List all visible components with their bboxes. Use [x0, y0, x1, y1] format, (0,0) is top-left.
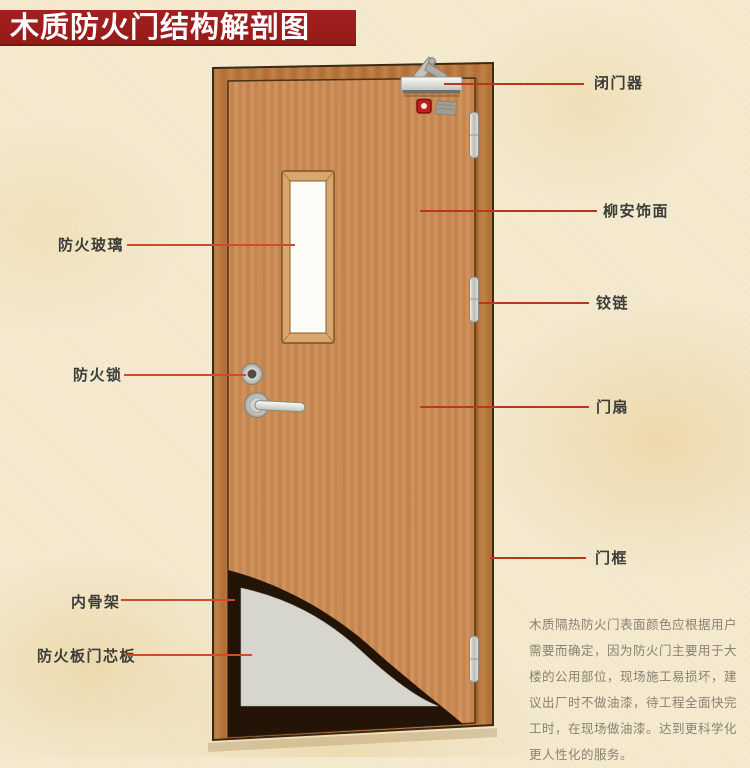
- description-line: 木质隔热防火门表面颜色应根据用户: [529, 612, 725, 638]
- callout-door-frame: 门框: [595, 550, 628, 568]
- leader-line-door-leaf: [420, 406, 589, 408]
- leader-line-core-panel: [125, 654, 252, 656]
- description-line: 楼的公用部位，现场施工易损坏，建: [529, 664, 725, 690]
- hinge-middle: [470, 277, 479, 322]
- description-line: 更人性化的服务。: [529, 742, 725, 768]
- leader-line-fire-lock: [124, 374, 246, 376]
- description-line: 工时，在现场做油漆。达到更科学化: [529, 716, 725, 742]
- leader-line-veneer: [420, 210, 597, 212]
- callout-veneer: 柳安饰面: [603, 203, 669, 221]
- leader-line-inner-skeleton: [121, 599, 235, 601]
- callout-core-panel: 防火板门芯板: [37, 648, 136, 666]
- description-line: 议出厂时不做油漆，待工程全面快完: [529, 690, 725, 716]
- leader-line-door-closer: [444, 83, 584, 85]
- callout-hinge: 铰链: [596, 295, 629, 313]
- hinge-bottom: [470, 636, 479, 682]
- leader-line-hinge: [479, 302, 589, 304]
- handle-lever: [255, 400, 305, 412]
- callout-door-leaf: 门扇: [596, 399, 629, 417]
- closer-pivot: [429, 58, 435, 64]
- vision-window: [282, 171, 334, 343]
- fire-glass: [290, 181, 326, 333]
- description-line: 需要而确定，因为防火门主要用于大: [529, 638, 725, 664]
- closer-underside: [403, 90, 460, 94]
- page: 木质防火门结构解剖图: [0, 0, 750, 757]
- alarm-indicator-dot: [421, 103, 427, 109]
- leader-line-fire-glass: [127, 244, 295, 246]
- closer-plate: [436, 101, 457, 115]
- callout-fire-glass: 防火玻璃: [58, 237, 124, 255]
- hinge-top: [470, 112, 479, 158]
- callout-fire-lock: 防火锁: [73, 367, 123, 385]
- description-text: 木质隔热防火门表面颜色应根据用户 需要而确定，因为防火门主要用于大 楼的公用部位…: [529, 612, 725, 768]
- leader-line-door-frame: [490, 557, 586, 559]
- callout-inner-skeleton: 内骨架: [71, 594, 121, 612]
- closer-shadow: [404, 95, 460, 98]
- lock-keyhole: [248, 370, 257, 379]
- callout-door-closer: 闭门器: [594, 75, 644, 93]
